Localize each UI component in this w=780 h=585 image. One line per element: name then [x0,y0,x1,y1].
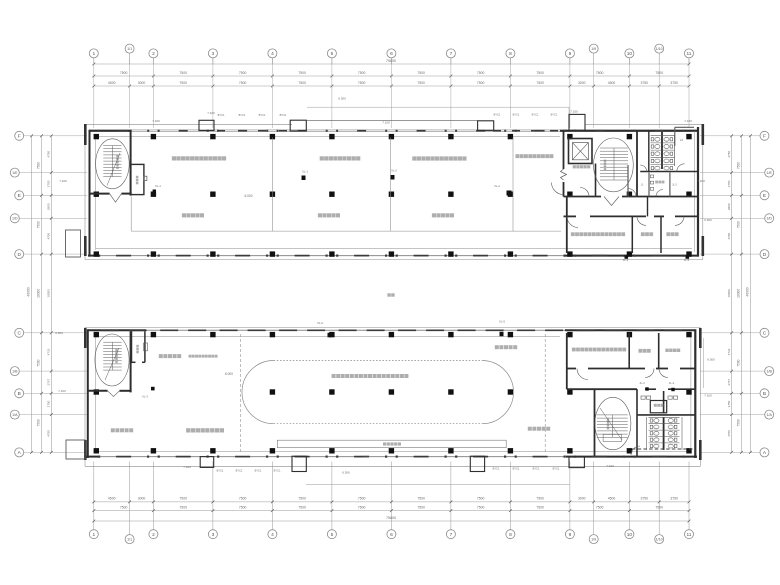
svg-text:1/E: 1/E [766,171,772,175]
svg-text:11: 11 [687,51,692,57]
svg-text:3: 3 [212,51,215,57]
svg-text:1/E: 1/E [12,171,18,175]
svg-text:4500: 4500 [608,496,616,500]
svg-text:7.100: 7.100 [207,111,215,115]
svg-text:7: 7 [450,51,453,57]
svg-text:BYC1: BYC1 [280,113,287,117]
svg-text:1/A: 1/A [766,413,772,417]
svg-text:8: 8 [509,532,512,538]
svg-text:10: 10 [627,532,633,538]
svg-text:7500: 7500 [417,81,425,85]
svg-text:7500: 7500 [417,71,425,75]
svg-text:7500: 7500 [477,71,485,75]
svg-text:4: 4 [271,51,274,57]
svg-text:2767: 2767 [727,379,731,386]
svg-text:7.100: 7.100 [59,179,67,183]
svg-text:1/1: 1/1 [127,47,132,51]
svg-text:5: 5 [331,532,334,538]
svg-text:10000: 10000 [727,289,731,298]
svg-text:7500: 7500 [298,71,306,75]
svg-text:7500: 7500 [179,71,187,75]
svg-text:1: 1 [92,532,95,538]
svg-text:4733: 4733 [47,348,51,355]
svg-text:7.100: 7.100 [152,119,160,123]
svg-text:7500: 7500 [477,505,485,509]
svg-text:XL-3: XL-3 [142,395,148,399]
svg-text:10000: 10000 [737,289,741,298]
svg-text:XL-2: XL-2 [494,184,500,188]
svg-text:11: 11 [687,532,692,538]
svg-text:7500: 7500 [655,505,663,509]
svg-text:9: 9 [569,532,572,538]
svg-text:F: F [763,134,766,140]
svg-text:7500: 7500 [37,162,41,169]
svg-text:6.300: 6.300 [707,358,715,362]
svg-text:3000: 3000 [578,81,586,85]
svg-text:7500: 7500 [298,505,306,509]
svg-text:6: 6 [390,532,393,538]
svg-text:1/10: 1/10 [656,537,663,541]
svg-text:7500: 7500 [298,81,306,85]
svg-text:BYC1: BYC1 [513,467,520,471]
svg-text:BYC1: BYC1 [551,113,558,117]
svg-text:BYC1: BYC1 [259,113,266,117]
svg-text:75800: 75800 [386,59,396,63]
svg-text:7500: 7500 [477,81,485,85]
svg-text:C: C [17,331,21,337]
svg-text:7500: 7500 [536,496,544,500]
svg-text:1/B: 1/B [12,369,18,373]
svg-text:7500: 7500 [737,221,741,228]
svg-text:BYC1: BYC1 [236,469,243,473]
svg-text:BYC1: BYC1 [217,469,224,473]
svg-text:7500: 7500 [358,71,366,75]
svg-text:7500: 7500 [120,71,128,75]
svg-text:3750: 3750 [670,81,678,85]
svg-text:XL-5: XL-5 [499,320,505,324]
svg-text:2750: 2750 [47,180,51,187]
svg-text:C: C [763,331,767,337]
svg-text:6.300: 6.300 [704,218,712,222]
svg-text:3000: 3000 [138,496,146,500]
svg-text:40000: 40000 [745,287,749,296]
svg-text:1/9: 1/9 [591,537,596,541]
svg-text:BYC1: BYC1 [513,113,520,117]
svg-text:2750: 2750 [727,400,731,407]
svg-text:XL-6: XL-6 [317,321,323,325]
svg-text:6.000: 6.000 [245,194,253,198]
svg-text:4500: 4500 [108,81,116,85]
svg-text:7500: 7500 [37,221,41,228]
svg-text:3000: 3000 [578,496,586,500]
svg-text:7500: 7500 [37,419,41,426]
svg-text:BYC1: BYC1 [218,113,225,117]
svg-text:XL-1: XL-1 [155,184,161,188]
svg-text:2750: 2750 [727,180,731,187]
svg-text:6.000: 6.000 [225,372,233,376]
svg-text:BYC1: BYC1 [532,113,539,117]
svg-text:4: 4 [271,532,274,538]
svg-text:1: 1 [92,51,95,57]
svg-text:F: F [18,134,21,140]
svg-text:7500: 7500 [37,359,41,366]
svg-text:1/B: 1/B [766,369,772,373]
svg-text:E: E [18,193,21,199]
svg-text:3750: 3750 [641,81,649,85]
svg-text:7500: 7500 [179,496,187,500]
svg-text:7.100: 7.100 [58,389,66,393]
svg-text:B: B [763,391,766,397]
svg-text:7500: 7500 [417,496,425,500]
svg-text:7.100: 7.100 [704,394,712,398]
svg-text:7500: 7500 [239,505,247,509]
svg-text:1/A: 1/A [12,413,18,417]
svg-text:4750: 4750 [727,430,731,437]
svg-text:XL-1: XL-1 [302,170,308,174]
svg-text:4733: 4733 [727,348,731,355]
svg-text:2800: 2800 [727,203,731,210]
svg-text:3750: 3750 [641,496,649,500]
svg-text:7500: 7500 [477,496,485,500]
svg-text:6.300: 6.300 [342,471,350,475]
svg-text:4750: 4750 [47,430,51,437]
svg-text:8: 8 [509,51,512,57]
svg-text:4750: 4750 [727,151,731,158]
svg-text:BYC1: BYC1 [553,467,560,471]
svg-text:9: 9 [569,51,572,57]
svg-text:40000: 40000 [27,287,31,296]
svg-text:7.100: 7.100 [382,121,390,125]
svg-text:4500: 4500 [108,496,116,500]
svg-text:7500: 7500 [298,496,306,500]
svg-text:2: 2 [152,51,155,57]
svg-text:7500: 7500 [737,359,741,366]
svg-text:7500: 7500 [536,505,544,509]
svg-text:1/1: 1/1 [127,537,132,541]
svg-text:4700: 4700 [47,233,51,240]
svg-text:7.100: 7.100 [361,455,369,459]
svg-text:5: 5 [331,51,334,57]
svg-text:3750: 3750 [670,496,678,500]
svg-text:BYC1: BYC1 [239,113,246,117]
svg-text:10000: 10000 [37,289,41,298]
svg-text:7500: 7500 [120,505,128,509]
svg-text:7500: 7500 [596,505,604,509]
svg-text:B: B [18,391,21,397]
svg-text:7500: 7500 [536,81,544,85]
svg-text:7500: 7500 [239,71,247,75]
svg-text:7.100: 7.100 [183,465,191,469]
svg-text:7: 7 [450,532,453,538]
svg-text:2750: 2750 [47,400,51,407]
svg-text:7500: 7500 [358,81,366,85]
svg-text:2: 2 [152,532,155,538]
svg-text:7500: 7500 [358,496,366,500]
svg-text:JL-2: JL-2 [672,184,677,187]
svg-text:D: D [763,252,767,258]
svg-text:7500: 7500 [358,505,366,509]
svg-text:1/10: 1/10 [656,47,663,51]
svg-text:4750: 4750 [47,151,51,158]
svg-text:6.300: 6.300 [338,97,346,101]
svg-text:7.100: 7.100 [697,179,705,183]
svg-text:4500: 4500 [608,81,616,85]
svg-text:6.300: 6.300 [55,331,63,335]
svg-text:JL-4: JL-4 [669,381,675,385]
svg-text:7.100: 7.100 [606,464,614,468]
svg-text:75800: 75800 [386,516,396,520]
svg-text:7500: 7500 [737,419,741,426]
svg-text:D: D [17,252,21,258]
svg-text:4700: 4700 [727,233,731,240]
svg-text:1/D: 1/D [766,217,772,221]
svg-text:7.100: 7.100 [570,110,578,114]
svg-text:7500: 7500 [239,496,247,500]
svg-text:7500: 7500 [239,81,247,85]
svg-text:1/D: 1/D [12,217,18,221]
svg-text:7500: 7500 [179,505,187,509]
svg-text:3000: 3000 [138,81,146,85]
svg-text:BYC1: BYC1 [494,113,501,117]
svg-text:7500: 7500 [417,505,425,509]
svg-text:7500: 7500 [596,71,604,75]
svg-text:JL-3: JL-3 [639,381,645,385]
svg-text:6: 6 [390,51,393,57]
svg-text:BYC1: BYC1 [255,469,262,473]
svg-text:7500: 7500 [536,71,544,75]
svg-text:7500: 7500 [179,81,187,85]
svg-text:XL-2: XL-2 [391,169,397,173]
svg-text:10000: 10000 [47,289,51,298]
svg-text:BYC1: BYC1 [274,469,281,473]
svg-text:10: 10 [627,51,633,57]
svg-text:2800: 2800 [47,203,51,210]
svg-text:2767: 2767 [47,379,51,386]
svg-text:BYC1: BYC1 [493,467,500,471]
svg-text:3: 3 [212,532,215,538]
svg-text:7.100: 7.100 [684,119,692,123]
svg-text:BYC1: BYC1 [533,467,540,471]
svg-text:1/9: 1/9 [591,47,596,51]
svg-text:E: E [763,193,766,199]
svg-text:7500: 7500 [737,162,741,169]
